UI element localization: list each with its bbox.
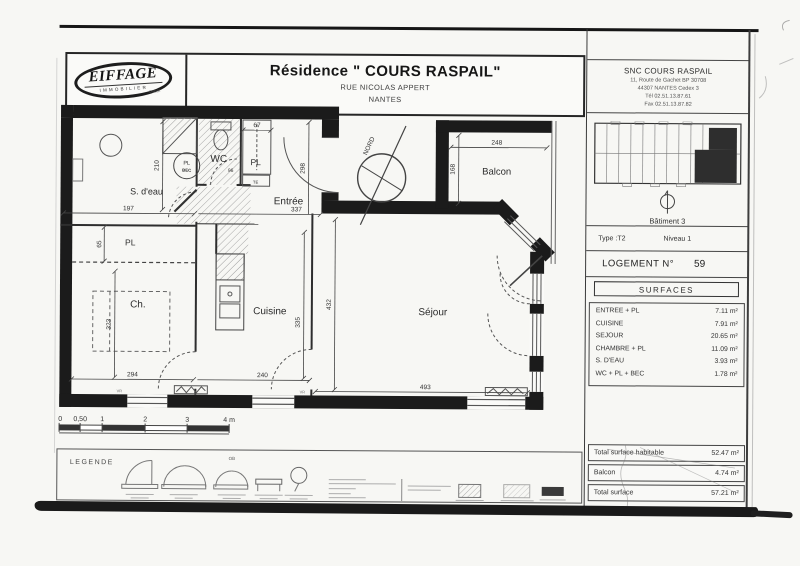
pencil-marks <box>751 2 800 112</box>
total-label: Total surface <box>594 489 634 496</box>
surface-row: CHAMBRE + PL 11.09 m² <box>596 345 738 358</box>
closet-sliding-front <box>72 262 196 263</box>
room-label-chambre: Ch. <box>130 299 146 310</box>
level-label: Niveau 1 <box>663 235 691 242</box>
total-row: Total surface habitable 52.47 m² <box>588 444 745 462</box>
legend-solidbox <box>542 487 564 496</box>
interior-partitions <box>59 118 313 396</box>
total-value: 4.74 m² <box>715 470 739 477</box>
scale-tick-0: 0 <box>58 416 62 423</box>
radiator-right-coil <box>487 389 523 395</box>
floor-plan: 197 337 210 65 67 96 298 294 240 493 323… <box>57 101 587 416</box>
room-label-pl-left: PL <box>125 237 136 247</box>
hall-floor-hatch <box>176 187 250 224</box>
key-plan-unit-highlight <box>695 150 737 183</box>
sheet-bottom-smudge-tail <box>750 510 792 518</box>
legend-door2-sill <box>162 485 206 489</box>
dim-sejour-height: 432 <box>326 299 333 310</box>
surface-value: 20.65 m² <box>711 333 738 346</box>
scale-bar: 0 0,50 1 2 3 4 m <box>57 412 237 443</box>
dim-balcon-height: 168 <box>450 164 457 175</box>
residence-street: RUE NICOLAS APPERT <box>187 82 583 93</box>
wc-floor-hatch <box>199 119 241 185</box>
dim-wc-width: 96 <box>228 168 234 174</box>
dim-lines <box>60 118 550 395</box>
legend-strip: LEGENDE OB <box>56 448 583 505</box>
logement-label: LOGEMENT N° <box>602 258 674 269</box>
sejour-window-swing <box>500 274 530 304</box>
scale-tick-3: 3 <box>185 417 189 424</box>
total-label: Balcon <box>594 469 615 476</box>
room-label-te: TE <box>253 180 259 185</box>
scale-tick-2: 2 <box>143 416 147 423</box>
vr-label-right: VR <box>300 390 306 394</box>
vr-label-left: VR <box>117 389 123 393</box>
dim-sejour-width: 493 <box>420 384 431 391</box>
total-value: 52.47 m² <box>711 450 739 457</box>
room-label-pl-right: PL <box>251 157 262 167</box>
key-plan <box>593 121 743 188</box>
legend-door1-arc <box>126 460 152 484</box>
company-fax: Fax 02.51.13.87.82 <box>587 101 749 108</box>
dim-entree-height: 298 <box>300 163 307 174</box>
surfaces-header: SURFACES <box>594 281 739 297</box>
kitchen-sink2 <box>220 304 240 318</box>
room-label-sdeau: S. d'eau <box>130 186 163 196</box>
surface-label: SEJOUR <box>596 332 624 345</box>
bay-window-glazing <box>504 216 540 251</box>
legend-circle-icon <box>291 467 307 483</box>
legend-door3-sill <box>214 485 248 489</box>
room-label-plbec2: BEC <box>182 168 191 173</box>
dim-pl-height: 65 <box>96 240 103 248</box>
surface-value: 3.93 m² <box>714 358 737 371</box>
scale-tick-4: 4 m <box>223 417 235 424</box>
dim-balcon-width: 248 <box>491 140 502 147</box>
surfaces-table: ENTREE + PL 7.11 m² CUISINE 7.91 m² SEJO… <box>588 302 745 387</box>
radiator-left-coil <box>176 387 205 393</box>
surface-label: CHAMBRE + PL <box>596 345 646 358</box>
scale-tick-1: 1 <box>100 416 104 423</box>
type-label: Type :T2 <box>598 235 625 242</box>
total-row: Balcon 4.74 m² <box>588 464 745 482</box>
room-label-plbec1: PL <box>183 161 190 167</box>
surface-label: S. D'EAU <box>595 357 624 370</box>
bay-wall-cap-top <box>497 204 514 221</box>
company-name: SNC COURS RASPAIL <box>587 66 749 76</box>
north-icon <box>657 190 677 216</box>
dim-pl-width: 67 <box>253 122 261 129</box>
exterior-walls <box>59 105 552 410</box>
building-label: Bâtiment 3 <box>586 216 748 226</box>
chambre-door-swing <box>158 352 195 389</box>
surface-row: WC + PL + BEC 1.78 m² <box>595 370 737 383</box>
legend-title: LEGENDE <box>70 459 114 466</box>
scanned-floorplan-sheet: EIFFAGE IMMOBILIER OUEST Résidence " COU… <box>0 0 800 566</box>
logement-row: LOGEMENT N° 59 <box>586 251 748 278</box>
legend-door2-arc2 <box>185 466 206 487</box>
legend-caption-lines <box>126 477 566 502</box>
kitchen-tap <box>228 292 232 296</box>
kitchen-appliance <box>216 254 244 280</box>
title-block: SNC COURS RASPAIL 11, Route de Gachet BP… <box>584 29 750 510</box>
paper-sheet: EIFFAGE IMMOBILIER OUEST Résidence " COU… <box>0 0 800 566</box>
dim-sdeau-width: 197 <box>123 205 134 212</box>
surface-label: CUISINE <box>596 320 624 333</box>
laundry-box <box>73 159 83 181</box>
surface-row: ENTREE + PL 7.11 m² <box>596 307 738 320</box>
scale-ticks: 0 0,50 1 2 3 4 m <box>58 416 235 424</box>
total-label: Total surface habitable <box>594 449 664 456</box>
residence-title: Résidence " COURS RASPAIL" <box>187 62 583 81</box>
legend-door2-arc1 <box>164 466 185 487</box>
surface-value: 11.09 m² <box>711 345 737 358</box>
key-plan-unit-highlight2 <box>709 128 737 150</box>
dim-chambre-width: 294 <box>127 371 138 378</box>
scale-tick-05: 0,50 <box>73 416 87 423</box>
eiffage-logo: EIFFAGE IMMOBILIER OUEST <box>73 59 173 101</box>
washbasin <box>100 134 122 156</box>
room-label-entree: Entrée <box>274 196 304 207</box>
company-tel: Tél 02.51.13.87.61 <box>587 93 749 100</box>
shower-hatch <box>163 118 197 154</box>
room-label-wc: WC <box>210 154 227 165</box>
legend-door1-sill <box>122 484 158 488</box>
north-label: NORD <box>362 136 377 157</box>
dim-sdeau-height: 210 <box>154 160 161 171</box>
logement-number: 59 <box>694 259 705 270</box>
dim-chambre-height: 323 <box>106 318 113 329</box>
legend-ob-label: OB <box>229 456 236 461</box>
surface-label: ENTREE + PL <box>596 307 640 320</box>
sheet-right-edge-faint <box>752 34 756 512</box>
legend-table-icon <box>256 479 282 484</box>
total-row: Total surface 57.21 m² <box>588 484 745 502</box>
room-label-balcon: Balcon <box>482 166 511 177</box>
dim-cuisine-width: 240 <box>257 372 268 379</box>
entrance-door-swing <box>284 137 339 192</box>
fixtures <box>71 117 529 396</box>
legend-hatchbox1 <box>459 484 481 497</box>
surface-value: 1.78 m² <box>714 370 737 383</box>
legend-hatchbox2 <box>504 485 530 498</box>
sejour-frenchdoor-swing <box>488 314 530 356</box>
company-address1: 11, Route de Gachet BP 30708 <box>587 77 749 84</box>
surface-row: S. D'EAU 3.93 m² <box>595 357 737 370</box>
surface-row: SEJOUR 20.65 m² <box>596 332 738 345</box>
surface-label: WC + PL + BEC <box>595 370 644 383</box>
right-windows <box>529 274 544 392</box>
surface-value: 7.91 m² <box>715 320 738 333</box>
dim-cuisine-height: 335 <box>295 317 302 328</box>
totals-table: Total surface habitable 52.47 m² Balcon … <box>588 444 745 505</box>
hall-floor-hatch2 <box>216 224 248 254</box>
room-label-cuisine: Cuisine <box>253 306 287 317</box>
balcony-railing <box>551 121 556 264</box>
kitchen-sink1 <box>220 286 240 302</box>
company-address2: 44307 NANTES Cedex 3 <box>587 85 749 92</box>
legend-door-icons <box>122 460 307 491</box>
key-plan-section: Bâtiment 3 <box>586 113 749 227</box>
total-value: 57.21 m² <box>711 490 739 497</box>
room-label-sejour: Séjour <box>418 307 448 318</box>
surface-value: 7.11 m² <box>715 308 738 321</box>
surface-row: CUISINE 7.91 m² <box>596 320 738 333</box>
legend-circle-tail <box>295 483 299 491</box>
type-row: Type :T2 Niveau 1 <box>586 226 748 252</box>
company-block: SNC COURS RASPAIL 11, Route de Gachet BP… <box>587 59 749 114</box>
cuisine-door-swing <box>271 349 311 389</box>
